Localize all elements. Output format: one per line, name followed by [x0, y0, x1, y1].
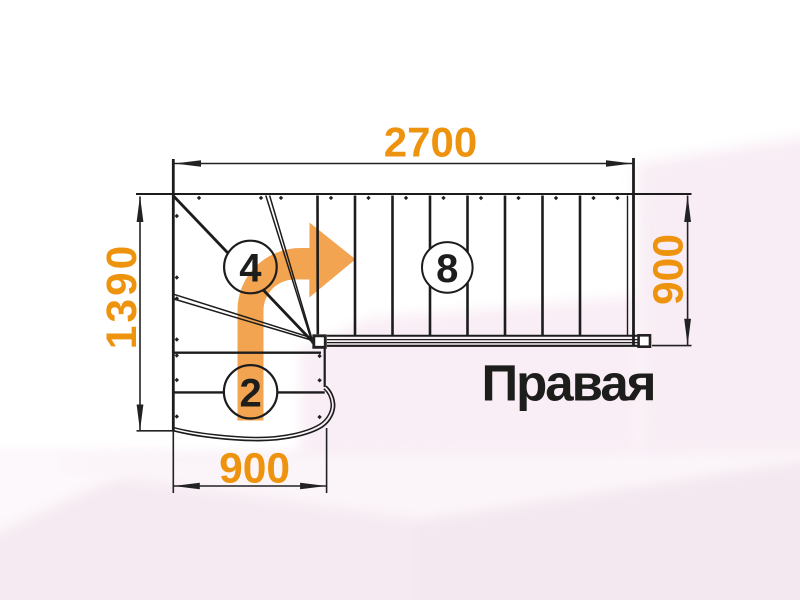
svg-text:4: 4 — [239, 247, 262, 291]
svg-text:2700: 2700 — [384, 119, 477, 166]
svg-text:900: 900 — [646, 234, 693, 305]
svg-text:900: 900 — [219, 445, 290, 492]
svg-text:8: 8 — [436, 247, 458, 291]
svg-text:Правая: Правая — [482, 355, 655, 412]
svg-text:2: 2 — [239, 371, 261, 415]
svg-text:1390: 1390 — [99, 243, 146, 350]
